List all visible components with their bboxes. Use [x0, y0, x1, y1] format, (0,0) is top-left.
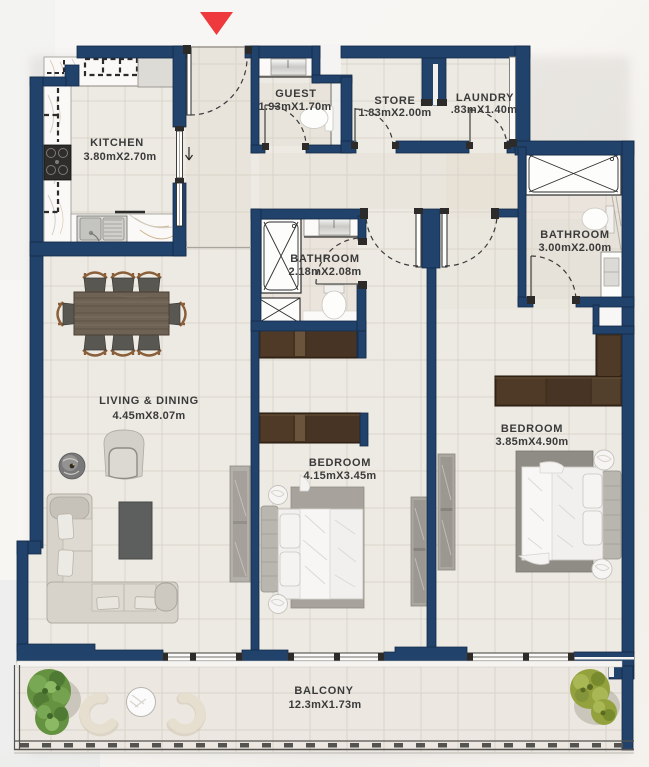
svg-text:12.3mX1.73m: 12.3mX1.73m — [288, 699, 361, 711]
svg-text:3.80mX2.70m: 3.80mX2.70m — [83, 151, 156, 163]
svg-text:BEDROOM: BEDROOM — [501, 423, 563, 435]
svg-text:2.18mX2.08m: 2.18mX2.08m — [288, 266, 361, 278]
svg-text:LAUNDRY: LAUNDRY — [456, 92, 514, 104]
svg-text:1.93mX1.70m: 1.93mX1.70m — [258, 101, 331, 113]
svg-text:KITCHEN: KITCHEN — [90, 137, 144, 149]
svg-text:1.83mX2.00m: 1.83mX2.00m — [358, 107, 431, 119]
svg-text:4.45mX8.07m: 4.45mX8.07m — [112, 410, 185, 422]
svg-text:BATHROOM: BATHROOM — [290, 253, 360, 265]
svg-text:3.85mX4.90m: 3.85mX4.90m — [495, 436, 568, 448]
svg-text:LIVING & DINING: LIVING & DINING — [99, 395, 199, 407]
svg-text:4.15mX3.45m: 4.15mX3.45m — [303, 470, 376, 482]
svg-text:BATHROOM: BATHROOM — [540, 229, 610, 241]
svg-text:GUEST: GUEST — [275, 88, 316, 100]
svg-text:.83mX1.40m: .83mX1.40m — [451, 104, 518, 116]
svg-text:BEDROOM: BEDROOM — [309, 457, 371, 469]
svg-text:STORE: STORE — [374, 95, 415, 107]
svg-text:BALCONY: BALCONY — [294, 685, 353, 697]
svg-text:3.00mX2.00m: 3.00mX2.00m — [538, 242, 611, 254]
